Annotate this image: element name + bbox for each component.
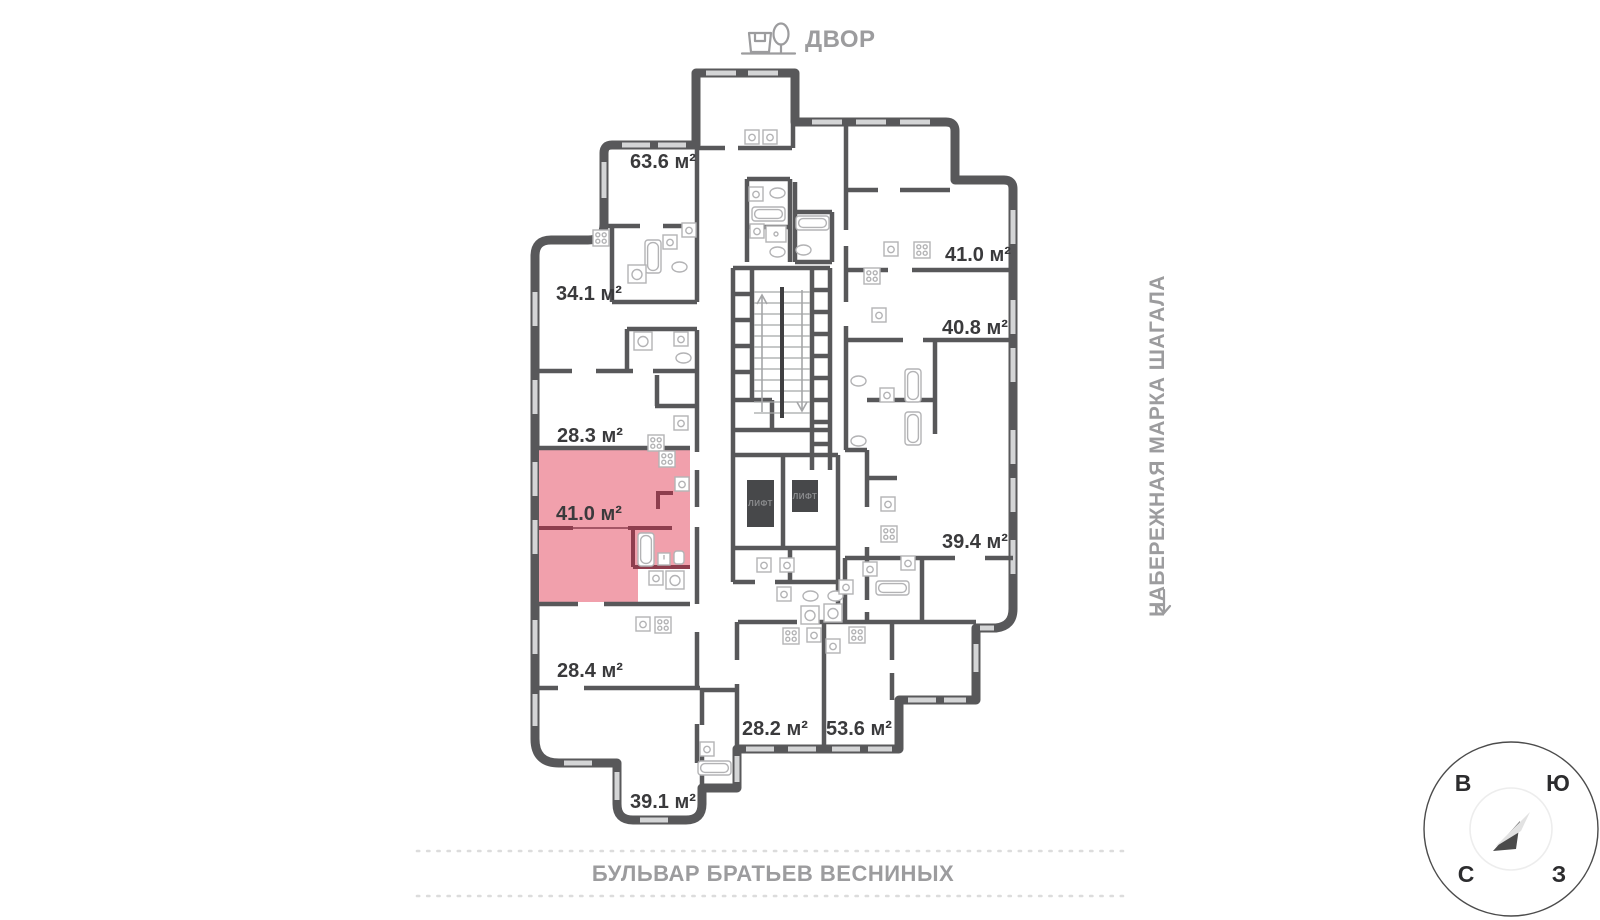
basin-icon: [770, 188, 785, 198]
sink-icon: [682, 223, 696, 237]
boulevard-label: БУЛЬВАР БРАТЬЕВ ВЕСНИНЫХ: [592, 861, 954, 886]
compass-north: С: [1458, 861, 1475, 887]
sink-icon: [649, 571, 663, 585]
elevator-label-left: ЛИФТ: [748, 499, 773, 508]
compass-south: Ю: [1546, 770, 1570, 796]
sink-icon: [674, 332, 688, 346]
sink-icon: [763, 130, 777, 144]
fridge-icon: [881, 497, 895, 511]
washer-icon: [824, 604, 842, 622]
stove-icon: [659, 451, 675, 467]
area-label-34-1: 34.1 м²: [556, 283, 622, 305]
sink-icon: [826, 639, 840, 653]
bathtub-icon: [905, 412, 921, 445]
basin-icon: [851, 376, 866, 386]
courtyard-label: ДВОР: [805, 26, 876, 53]
courtyard-icon: [742, 24, 795, 54]
toilet-icon: [674, 551, 684, 564]
washer-icon: [628, 265, 646, 283]
sink-icon: [745, 130, 759, 144]
compass-west: З: [1552, 861, 1566, 887]
basin-icon: [672, 262, 687, 272]
sink-icon: [780, 558, 794, 572]
washer-icon: [801, 606, 819, 624]
area-label-39-1: 39.1 м²: [630, 791, 696, 813]
area-label-39-4: 39.4 м²: [942, 531, 1008, 553]
washer-icon: [666, 571, 684, 589]
sink-icon: [700, 742, 714, 756]
staircase: [754, 287, 810, 418]
area-label-28-3: 28.3 м²: [557, 425, 623, 447]
sink-icon: [777, 587, 791, 601]
sink-icon: [880, 388, 894, 402]
basin-icon: [796, 245, 811, 255]
sink-icon: [863, 562, 877, 576]
elevator-label-right: ЛИФТ: [793, 492, 818, 501]
sink-icon: [884, 242, 898, 256]
stove-icon: [849, 627, 865, 643]
floor-plan-canvas: ЛИФТ ЛИФТ: [0, 0, 1600, 920]
bathtub-icon: [752, 207, 785, 221]
sink-icon: [674, 416, 688, 430]
sink-icon: [675, 477, 689, 491]
sink-icon: [839, 580, 853, 594]
washer-icon: [634, 332, 652, 350]
bathtub-icon: [645, 240, 661, 273]
basin-icon: [676, 353, 691, 363]
stove-icon: [881, 526, 897, 542]
area-label-41-0-highlighted: 41.0 м²: [556, 503, 622, 525]
bathtub-icon: [905, 369, 921, 402]
courtyard-landmark: ДВОР: [742, 24, 876, 54]
basin-icon: [851, 436, 866, 446]
embankment-label: НАБЕРЕЖНАЯ МАРКА ШАГАЛА: [1146, 275, 1169, 617]
sink-icon: [901, 556, 915, 570]
basin-icon: [803, 591, 818, 601]
area-label-63-6: 63.6 м²: [630, 151, 696, 173]
sink-icon: [749, 187, 763, 201]
sink-icon: [658, 553, 670, 565]
floor-plan-page: ЛИФТ ЛИФТ: [0, 0, 1600, 920]
compass-outer-circle: [1424, 742, 1598, 916]
area-label-28-2: 28.2 м²: [742, 718, 808, 740]
stove-icon: [783, 628, 799, 644]
sink-icon: [807, 628, 821, 642]
stove-icon: [914, 242, 930, 258]
compass: В Ю С З: [1424, 742, 1598, 916]
sink-icon: [872, 308, 886, 322]
embankment-landmark: НАБЕРЕЖНАЯ МАРКА ШАГАЛА: [1146, 275, 1170, 617]
sink-icon: [663, 235, 677, 249]
basin-icon: [770, 247, 785, 257]
bathtub-icon: [638, 533, 654, 566]
stove-icon: [655, 617, 671, 633]
stove-icon: [648, 435, 664, 451]
area-label-41-0-right: 41.0 м²: [945, 244, 1011, 266]
shower-icon: [766, 226, 786, 242]
sink-icon: [757, 558, 771, 572]
boulevard-landmark: БУЛЬВАР БРАТЬЕВ ВЕСНИНЫХ: [417, 851, 1130, 896]
compass-east: В: [1455, 770, 1472, 796]
sink-icon: [636, 617, 650, 631]
stove-icon: [864, 268, 880, 284]
bathtub-icon: [698, 761, 731, 775]
stove-icon: [593, 230, 609, 246]
area-label-28-4: 28.4 м²: [557, 660, 623, 682]
area-label-40-8: 40.8 м²: [942, 317, 1008, 339]
bathtub-icon: [876, 581, 909, 595]
building-plan: ЛИФТ ЛИФТ: [535, 73, 1013, 820]
sink-icon: [750, 224, 764, 238]
bathtub-icon: [796, 216, 829, 230]
area-label-53-6: 53.6 м²: [826, 718, 892, 740]
